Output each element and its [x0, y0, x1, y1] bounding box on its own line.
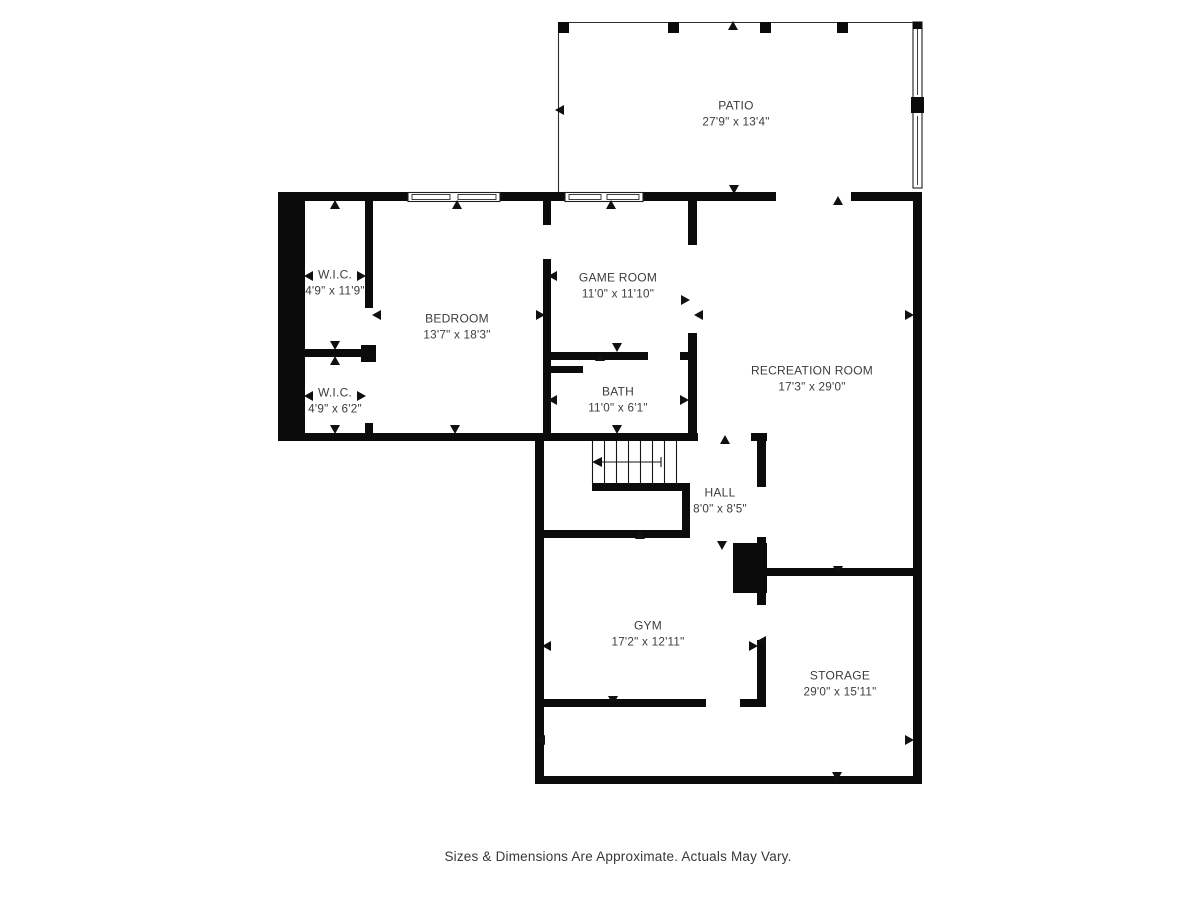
room-dimensions: 29'0" x 15'11": [803, 684, 876, 701]
window: [565, 193, 643, 202]
room-dimensions: 13'7" x 18'3": [423, 327, 490, 344]
room-label-patio: PATIO 27'9" x 13'4": [702, 98, 769, 131]
wall-segment: [278, 433, 698, 441]
room-name: GAME ROOM: [579, 270, 657, 287]
room-dimensions: 4'9" x 11'9": [305, 283, 365, 300]
wall-segment: [913, 192, 922, 784]
dimension-tick: [717, 541, 727, 550]
room-name: PATIO: [702, 98, 769, 115]
room-name: STORAGE: [803, 668, 876, 685]
room-label-hall: HALL 8'0" x 8'5": [693, 485, 747, 518]
dimension-tick: [612, 425, 622, 434]
wall-segment: [535, 776, 922, 784]
wall-segment: [592, 483, 690, 491]
room-name: RECREATION ROOM: [751, 363, 873, 380]
patio-post: [837, 22, 848, 33]
wall-segment: [733, 543, 767, 593]
wall-segment: [688, 333, 697, 433]
wall-segment: [751, 433, 767, 441]
room-dimensions: 27'9" x 13'4": [702, 114, 769, 131]
room-dimensions: 17'2" x 12'11": [611, 634, 684, 651]
dimension-tick: [612, 343, 622, 352]
room-label-gym: GYM 17'2" x 12'11": [611, 618, 684, 651]
wall-segment: [757, 537, 766, 543]
dimension-tick: [330, 200, 340, 209]
window-frame: [408, 193, 500, 202]
floor-plan-page: PATIO 27'9" x 13'4" W.I.C. 4'9" x 11'9" …: [0, 0, 1200, 900]
room-label-storage: STORAGE 29'0" x 15'11": [803, 668, 876, 701]
railing-post: [911, 97, 924, 113]
wall-segment: [688, 201, 697, 245]
wall-segment: [361, 345, 376, 362]
wall-segment: [543, 201, 551, 225]
dimension-tick: [681, 295, 690, 305]
room-label-wic-upper: W.I.C. 4'9" x 11'9": [305, 267, 365, 300]
wall-segment: [365, 423, 373, 433]
window: [408, 193, 500, 202]
disclaimer-text: Sizes & Dimensions Are Approximate. Actu…: [444, 849, 791, 864]
dimension-tick: [450, 425, 460, 434]
wall-segment: [365, 201, 373, 308]
dimension-tick: [905, 310, 914, 320]
dimension-tick: [330, 356, 340, 365]
wall-segment: [643, 192, 776, 201]
room-dimensions: 4'9" x 6'2": [308, 401, 362, 418]
room-name: W.I.C.: [308, 385, 362, 402]
room-label-bedroom: BEDROOM 13'7" x 18'3": [423, 311, 490, 344]
wall-segment: [757, 441, 766, 487]
dimension-tick: [680, 395, 689, 405]
wall-segment: [740, 699, 766, 707]
room-label-game-room: GAME ROOM 11'0" x 11'10": [579, 270, 657, 303]
dimension-tick: [372, 310, 381, 320]
dimension-tick: [330, 425, 340, 434]
patio-posts: [558, 22, 848, 33]
patio-post: [558, 22, 569, 33]
room-dimensions: 11'0" x 11'10": [579, 286, 657, 303]
room-name: BEDROOM: [423, 311, 490, 328]
wall-segment: [551, 366, 583, 373]
patio-post: [668, 22, 679, 33]
floor-plan-drawing: [0, 0, 1200, 900]
room-name: GYM: [611, 618, 684, 635]
window-frame: [565, 193, 643, 202]
wall-segment: [682, 483, 690, 538]
wall-segment: [535, 433, 544, 784]
room-dimensions: 11'0" x 6'1": [588, 400, 648, 417]
wall-segment: [278, 192, 305, 441]
room-dimensions: 8'0" x 8'5": [693, 501, 747, 518]
railing-cap: [913, 22, 922, 29]
dimension-tick: [905, 735, 914, 745]
room-label-wic-lower: W.I.C. 4'9" x 6'2": [308, 385, 362, 418]
staircase: [592, 441, 677, 483]
wall-segment: [535, 530, 690, 538]
room-name: HALL: [693, 485, 747, 502]
wall-segment: [500, 192, 565, 201]
dimension-tick: [694, 310, 703, 320]
room-label-bath: BATH 11'0" x 6'1": [588, 384, 648, 417]
wall-segment: [757, 640, 766, 699]
wall-segment: [543, 352, 648, 360]
stair-direction-arrow: [592, 457, 602, 467]
dimension-tick: [330, 341, 340, 350]
wall-segment: [851, 192, 922, 201]
wall-segment: [305, 349, 363, 357]
patio-railing: [911, 22, 924, 188]
dimension-tick: [555, 105, 564, 115]
wall-segment: [535, 699, 706, 707]
wall-segment: [757, 593, 766, 605]
wall-segment: [680, 352, 697, 360]
room-dimensions: 17'3" x 29'0": [751, 379, 873, 396]
room-label-recreation-room: RECREATION ROOM 17'3" x 29'0": [751, 363, 873, 396]
room-name: W.I.C.: [305, 267, 365, 284]
room-name: BATH: [588, 384, 648, 401]
dimension-tick: [720, 435, 730, 444]
dimension-tick: [749, 641, 758, 651]
dimension-tick: [833, 196, 843, 205]
wall-segment: [543, 259, 551, 433]
patio-post: [760, 22, 771, 33]
